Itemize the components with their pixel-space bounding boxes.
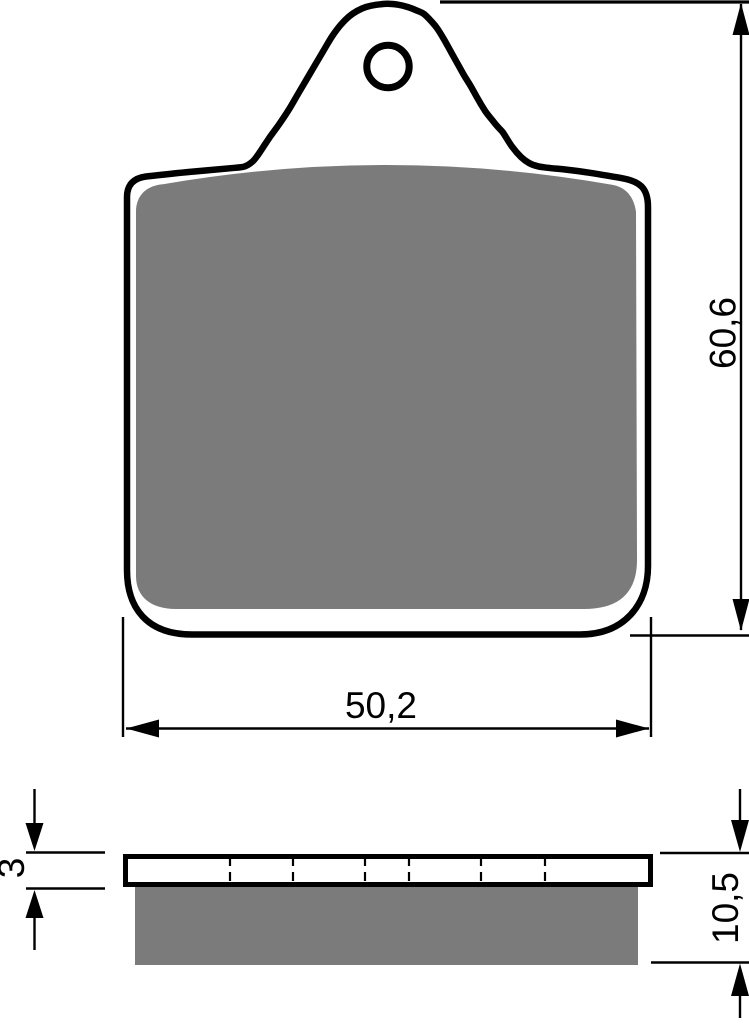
svg-text:3: 3 — [0, 858, 32, 879]
svg-text:50,2: 50,2 — [345, 685, 417, 726]
svg-text:60,6: 60,6 — [703, 297, 744, 369]
svg-text:10,5: 10,5 — [705, 872, 746, 944]
